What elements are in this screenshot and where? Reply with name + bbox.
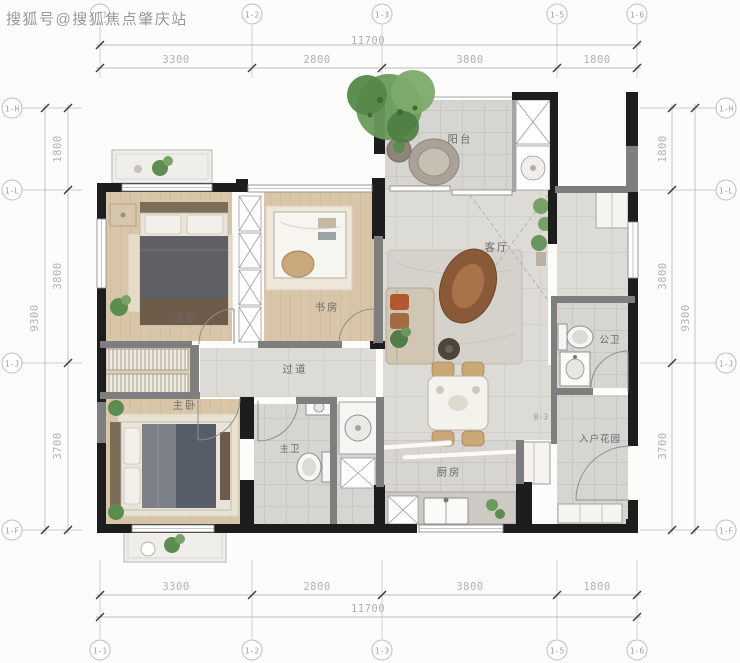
room-label-master-bathroom: 主卫 [279,441,300,455]
laundry-niche [339,402,377,488]
dim-top-total: 11700 [351,35,385,47]
floor-plan-drawing [0,0,740,663]
floor-plan-page: 1-1 1-2 1-3 1-5 1-6 1-1 1-2 1-3 1-5 1-6 … [0,0,740,663]
grid-bubble-right-2: 1-L [716,180,737,201]
dim-left-seg-2: 3800 [52,262,64,289]
unit-type-label: B-3 [534,413,548,422]
dim-bottom-total: 11700 [351,603,385,615]
dim-right-total: 9300 [680,304,692,331]
grid-bubble-left-3: 1-J [2,353,23,374]
grid-bubble-right-4: 1-F [716,520,737,541]
room-label-master-bedroom: 主卧 [173,398,198,413]
grid-bubble-bottom-1: 1-1 [90,640,111,661]
room-label-corridor: 过道 [283,362,308,377]
room-label-entry-garden: 入户花园 [579,431,621,445]
study-furniture [266,206,352,290]
grid-bubble-left-1: 1-H [2,98,23,119]
utility-shaft [516,100,550,190]
dim-right-seg-2: 3800 [657,262,669,289]
grid-bubble-bottom-3: 1-3 [372,640,393,661]
dim-right-seg-1: 1800 [657,135,669,162]
dim-left-total: 9300 [29,304,41,331]
grid-bubble-top-5: 1-6 [627,4,648,25]
grid-bubble-bottom-2: 1-2 [242,640,263,661]
dim-bottom-seg-3: 3800 [456,581,483,593]
watermark-text: 搜狐号@搜狐焦点肇庆站 [6,8,188,29]
room-label-balcony: 阳台 [448,132,473,147]
dim-bottom-seg-4: 1800 [583,581,610,593]
grid-bubble-left-4: 1-F [2,520,23,541]
grid-bubble-top-3: 1-3 [372,4,393,25]
grid-bubble-right-3: 1-J [716,353,737,374]
flower-box-top [112,150,212,183]
public-bathroom-fixtures [558,324,593,386]
room-label-kitchen: 厨房 [437,465,462,480]
grid-bubble-left-2: 1-L [2,180,23,201]
dim-right-seg-3: 3700 [657,432,669,459]
flower-box-bottom [124,528,226,562]
room-label-secondary-bedroom: 次卧 [174,311,199,326]
grid-bubble-right-1: 1-H [716,98,737,119]
dim-top-seg-4: 1800 [583,54,610,66]
grid-bubble-bottom-5: 1-6 [627,640,648,661]
room-label-study: 书房 [315,300,340,315]
dim-top-seg-3: 3800 [456,54,483,66]
dim-top-seg-1: 3300 [162,54,189,66]
dim-top-seg-2: 2800 [303,54,330,66]
dim-bottom-seg-2: 2800 [303,581,330,593]
master-bedroom-furniture [108,400,238,520]
room-label-public-bathroom: 公卫 [599,332,620,346]
room-label-living: 客厅 [485,240,510,255]
dim-left-seg-1: 1800 [52,135,64,162]
grid-bubble-bottom-4: 1-5 [547,640,568,661]
grid-bubble-top-4: 1-5 [547,4,568,25]
dim-left-seg-3: 3700 [52,432,64,459]
grid-bubble-top-2: 1-2 [242,4,263,25]
dim-bottom-seg-1: 3300 [162,581,189,593]
